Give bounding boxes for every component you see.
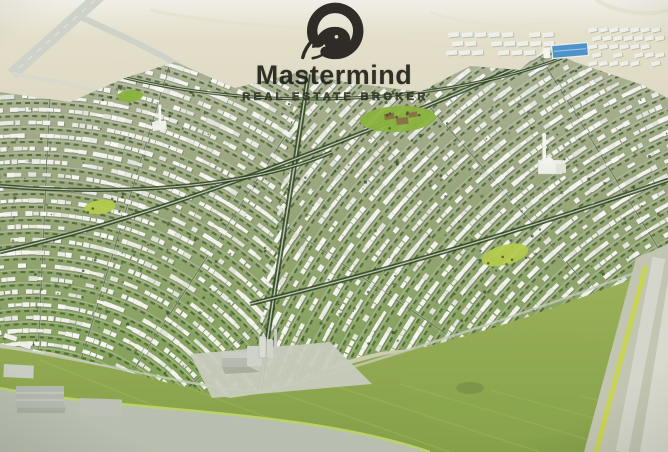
- masterplan-scene: [0, 0, 668, 452]
- vignette: [0, 0, 668, 452]
- aerial-render: Mastermind REAL ESTATE BROKER: [0, 0, 668, 452]
